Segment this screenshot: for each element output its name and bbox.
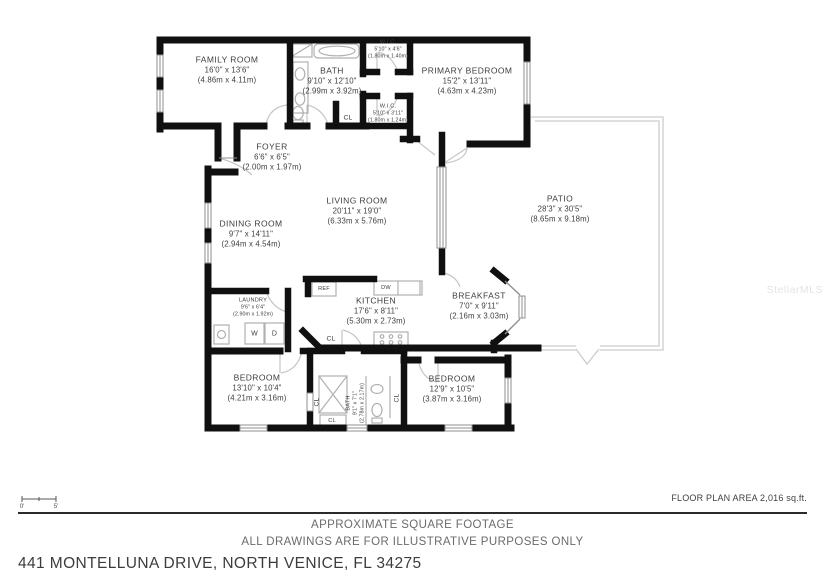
closet-label-right: CL [394, 393, 401, 402]
scale-zero-label: 0' [20, 503, 25, 510]
dryer-label: D [272, 331, 277, 338]
mls-watermark: StellarMLS [767, 284, 823, 296]
room-label-dining-room: DINING ROOM 9'7" x 14'11" (2.94m x 4.54m… [220, 218, 283, 249]
floor-plan-page: FAMILY ROOM 16'0" x 13'6" (4.86m x 4.11m… [0, 0, 825, 582]
closet-label-under-shower: CL [328, 418, 336, 424]
toilet-bottom [372, 404, 382, 417]
disclaimer-line-2: ALL DRAWINGS ARE FOR ILLUSTRATIVE PURPOS… [0, 536, 825, 548]
washer-label: W [251, 331, 258, 338]
shower-bottom [319, 376, 347, 413]
room-label-family-room: FAMILY ROOM 16'0" x 13'6" (4.86m x 4.11m… [196, 54, 259, 85]
shower-top [291, 44, 312, 57]
toilet-top [293, 107, 303, 126]
closet-door-left [307, 393, 313, 411]
lower-bath-fixtures [366, 376, 390, 428]
room-label-living-room: LIVING ROOM 20'11" x 19'0" (6.33m x 5.76… [326, 195, 387, 226]
bathtub [314, 44, 359, 58]
refrigerator-label: REF [318, 286, 330, 292]
room-label-wic-top: W.I.C. 5'10" x 4'6" (1.80m x 1.40m) [368, 39, 408, 60]
room-label-laundry: LAUNDRY 9'6" x 6'4" (2.90m x 1.92m) [233, 297, 273, 318]
room-label-bedroom-right: BEDROOM 12'9" x 10'5" (3.87m x 3.16m) [422, 373, 481, 404]
property-address: 441 MONTELLUNA DRIVE, NORTH VENICE, FL 3… [18, 555, 422, 573]
room-label-patio: PATIO 28'3" x 30'5" (8.65m x 9.18m) [530, 193, 589, 224]
room-label-wic-bottom: W.I.C. 5'10" x 3'11" (1.80m x 1.24m) [368, 103, 408, 124]
patio-outline [531, 117, 663, 364]
disclaimer-line-1: APPROXIMATE SQUARE FOOTAGE [0, 519, 825, 531]
room-label-primary-bedroom: PRIMARY BEDROOM 15'2" x 13'11" (4.63m x … [422, 65, 513, 96]
room-label-foyer: FOYER 6'6" x 6'5" (2.00m x 1.97m) [242, 141, 301, 172]
room-label-kitchen: KITCHEN 17'6" x 8'11" (5.30m x 2.73m) [346, 295, 405, 326]
patio-door-swing [576, 349, 599, 364]
room-label-breakfast: BREAKFAST 7'0" x 9'11" (2.16m x 3.03m) [449, 290, 508, 321]
room-label-bath-lower: BATH 9'1" x 7'1" (2.78m x 2.17m) [345, 383, 366, 423]
room-label-bath: BATH 9'10" x 12'10" (2.99m x 3.92m) [302, 65, 361, 96]
scale-bar [22, 496, 56, 502]
closet-label-left: CL [314, 397, 321, 406]
floor-plan-area-note: FLOOR PLAN AREA 2,016 sq.ft. [671, 493, 807, 503]
closet-label-bath: CL [343, 115, 352, 122]
cooktop-island [374, 332, 408, 346]
footer-divider [18, 512, 807, 514]
scale-five-label: 5' [54, 503, 59, 510]
room-label-bedroom-left: BEDROOM 13'10" x 10'4" (4.21m x 3.16m) [227, 372, 286, 403]
sink [371, 385, 383, 394]
exterior-walls [160, 40, 538, 428]
sliding-glass-door [437, 167, 446, 248]
dishwasher-label: DW [381, 285, 391, 291]
closet-label-kitchen: CL [326, 336, 335, 343]
